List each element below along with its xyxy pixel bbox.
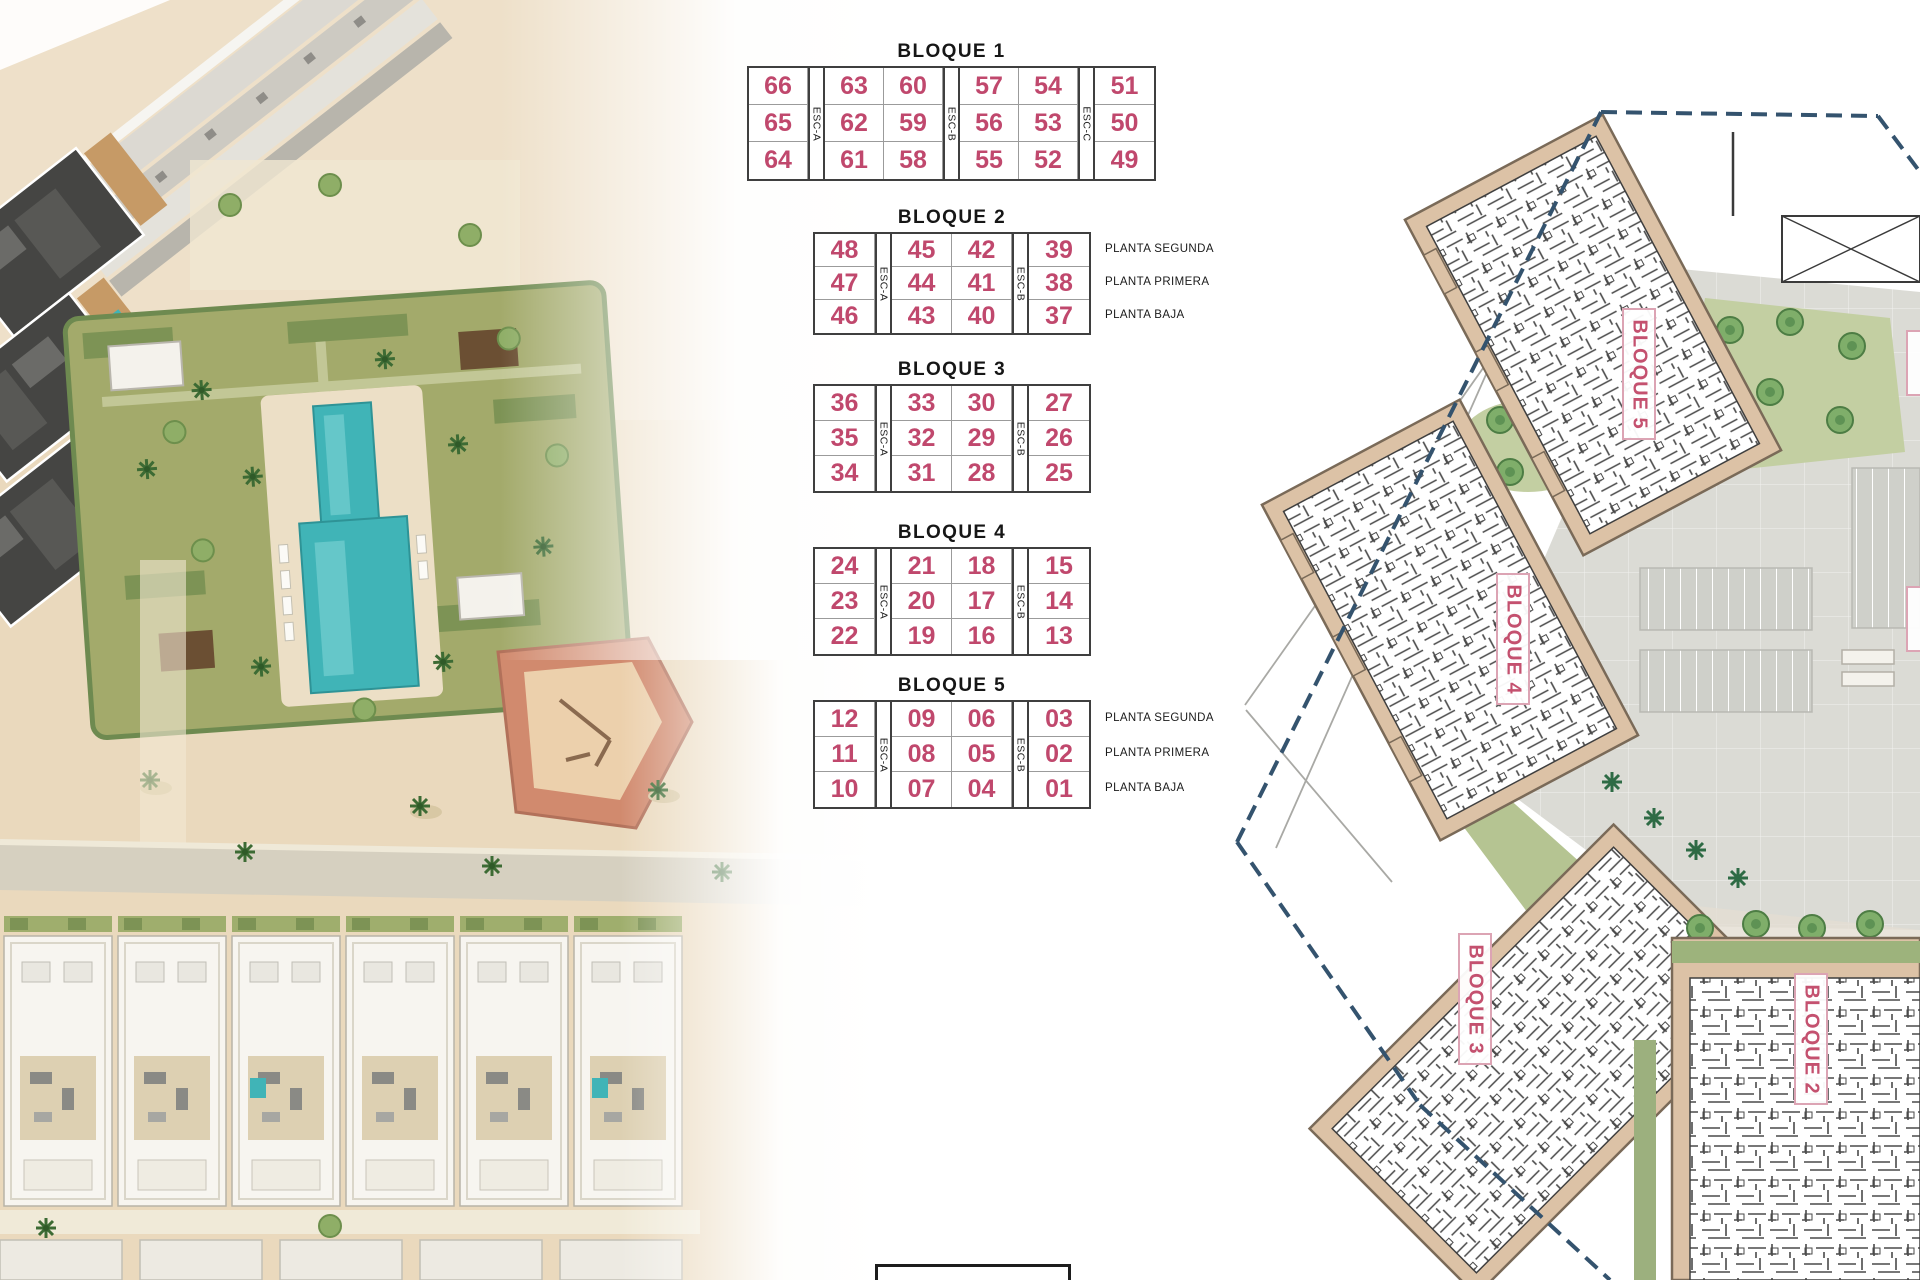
unit-number: 48: [815, 234, 875, 267]
unit-number: 64: [749, 142, 808, 179]
unit-number: 57: [960, 68, 1019, 105]
unit-number: 24: [815, 549, 875, 584]
unit-number: 04: [952, 772, 1012, 807]
unit-number: 37: [1029, 300, 1089, 333]
unit-number: 05: [952, 737, 1012, 772]
unit-number: 38: [1029, 267, 1089, 300]
stairwell-label: ESC-B: [1012, 234, 1029, 333]
unit-number: 14: [1029, 584, 1089, 619]
stairwell-label: ESC-A: [808, 68, 825, 179]
unit-number: 22: [815, 619, 875, 654]
stairwell-label: ESC-A: [875, 702, 892, 807]
unit-number: 43: [892, 300, 952, 333]
stairwell-label: ESC-A: [875, 386, 892, 491]
unit-number: 10: [815, 772, 875, 807]
unit-number: 28: [952, 456, 1012, 491]
plan-label-bloque-4: BLOQUE 4: [1496, 573, 1530, 705]
bloque-4-table: 242322ESC-A212019181716ESC-B151413: [813, 547, 1091, 656]
unit-number: 23: [815, 584, 875, 619]
unit-number: 56: [960, 105, 1019, 142]
bloque-1-title: BLOQUE 1: [747, 40, 1156, 66]
stairwell-label: ESC-A: [875, 549, 892, 654]
plan-label-bloque-2: BLOQUE 2: [1794, 973, 1828, 1105]
bloque-2-table: 484746ESC-A454443424140ESC-B393837: [813, 232, 1091, 335]
unit-number: 13: [1029, 619, 1089, 654]
bottom-cutoff-box: [875, 1264, 1071, 1280]
floor-label: PLANTA PRIMERA: [1105, 735, 1214, 770]
unit-number: 02: [1029, 737, 1089, 772]
bloque-3-table: 363534ESC-A333231302928ESC-B272625: [813, 384, 1091, 493]
unit-number: 29: [952, 421, 1012, 456]
unit-number: 34: [815, 456, 875, 491]
cutoff-label-stub: [1906, 330, 1920, 396]
unit-number: 21: [892, 549, 952, 584]
unit-number: 47: [815, 267, 875, 300]
plan-label-bloque-5: BLOQUE 5: [1622, 308, 1656, 440]
unit-number: 49: [1095, 142, 1154, 179]
unit-number: 33: [892, 386, 952, 421]
bloque-3-title: BLOQUE 3: [813, 358, 1091, 384]
unit-number: 52: [1019, 142, 1078, 179]
unit-number: 40: [952, 300, 1012, 333]
floor-label: PLANTA PRIMERA: [1105, 265, 1214, 298]
unit-number: 20: [892, 584, 952, 619]
unit-number: 15: [1029, 549, 1089, 584]
stairwell-label: ESC-C: [1078, 68, 1095, 179]
unit-number: 36: [815, 386, 875, 421]
unit-number: 32: [892, 421, 952, 456]
unit-number: 41: [952, 267, 1012, 300]
unit-number: 11: [815, 737, 875, 772]
unit-number: 27: [1029, 386, 1089, 421]
floor-label: PLANTA SEGUNDA: [1105, 232, 1214, 265]
unit-number: 16: [952, 619, 1012, 654]
stairwell-label: ESC-A: [875, 234, 892, 333]
bloque-4-legend: BLOQUE 4 242322ESC-A212019181716ESC-B151…: [813, 521, 1091, 656]
unit-number: 45: [892, 234, 952, 267]
bloque-1-legend: BLOQUE 1 666564ESC-A636261605958ESC-B575…: [747, 40, 1156, 181]
cutoff-label-stub: [1906, 586, 1920, 652]
floor-label: PLANTA BAJA: [1105, 770, 1214, 805]
unit-number: 63: [825, 68, 884, 105]
unit-number: 07: [892, 772, 952, 807]
bloque-4-title: BLOQUE 4: [813, 521, 1091, 547]
unit-number: 54: [1019, 68, 1078, 105]
unit-number: 46: [815, 300, 875, 333]
bloque-2-title: BLOQUE 2: [813, 206, 1091, 232]
bloque-1-table: 666564ESC-A636261605958ESC-B575655545352…: [747, 66, 1156, 181]
brochure-page: BLOQUE 1 666564ESC-A636261605958ESC-B575…: [0, 0, 1920, 1280]
unit-number: 44: [892, 267, 952, 300]
plan-label-bloque-3: BLOQUE 3: [1458, 933, 1492, 1065]
unit-number: 58: [884, 142, 943, 179]
unit-number: 35: [815, 421, 875, 456]
pergola: [108, 341, 183, 390]
bottom-path: [0, 1210, 700, 1234]
unit-number: 55: [960, 142, 1019, 179]
stairwell-label: ESC-B: [943, 68, 960, 179]
unit-number: 61: [825, 142, 884, 179]
stairwell-label: ESC-B: [1012, 549, 1029, 654]
unit-number: 08: [892, 737, 952, 772]
unit-number: 30: [952, 386, 1012, 421]
unit-number: 51: [1095, 68, 1154, 105]
bloque-2-floors: PLANTA SEGUNDAPLANTA PRIMERAPLANTA BAJA: [1105, 232, 1214, 331]
unit-number: 53: [1019, 105, 1078, 142]
bloque-3-legend: BLOQUE 3 363534ESC-A333231302928ESC-B272…: [813, 358, 1091, 493]
hedge-strip: [1634, 1040, 1656, 1280]
aerial-render: [0, 0, 880, 1280]
floor-label: PLANTA BAJA: [1105, 298, 1214, 331]
floor-label: PLANTA SEGUNDA: [1105, 700, 1214, 735]
unit-number: 39: [1029, 234, 1089, 267]
unit-number: 59: [884, 105, 943, 142]
unit-number: 06: [952, 702, 1012, 737]
bloque-2-legend: BLOQUE 2 484746ESC-A454443424140ESC-B393…: [813, 206, 1091, 335]
unit-number: 31: [892, 456, 952, 491]
bloque-5-floors: PLANTA SEGUNDAPLANTA PRIMERAPLANTA BAJA: [1105, 700, 1214, 805]
unit-number: 66: [749, 68, 808, 105]
unit-number: 09: [892, 702, 952, 737]
unit-number: 25: [1029, 456, 1089, 491]
bloque-5-table: 121110ESC-A090807060504ESC-B030201: [813, 700, 1091, 809]
stairwell-label: ESC-B: [1012, 386, 1029, 491]
unit-number: 42: [952, 234, 1012, 267]
bloque-5-title: BLOQUE 5: [813, 674, 1091, 700]
bloque-5-legend: BLOQUE 5 121110ESC-A090807060504ESC-B030…: [813, 674, 1091, 809]
unit-number: 60: [884, 68, 943, 105]
unit-number: 65: [749, 105, 808, 142]
unit-number: 26: [1029, 421, 1089, 456]
unit-number: 50: [1095, 105, 1154, 142]
unit-number: 19: [892, 619, 952, 654]
unit-number: 18: [952, 549, 1012, 584]
unit-number: 03: [1029, 702, 1089, 737]
unit-number: 62: [825, 105, 884, 142]
unit-number: 17: [952, 584, 1012, 619]
stairwell-label: ESC-B: [1012, 702, 1029, 807]
unit-number: 12: [815, 702, 875, 737]
unit-number: 01: [1029, 772, 1089, 807]
